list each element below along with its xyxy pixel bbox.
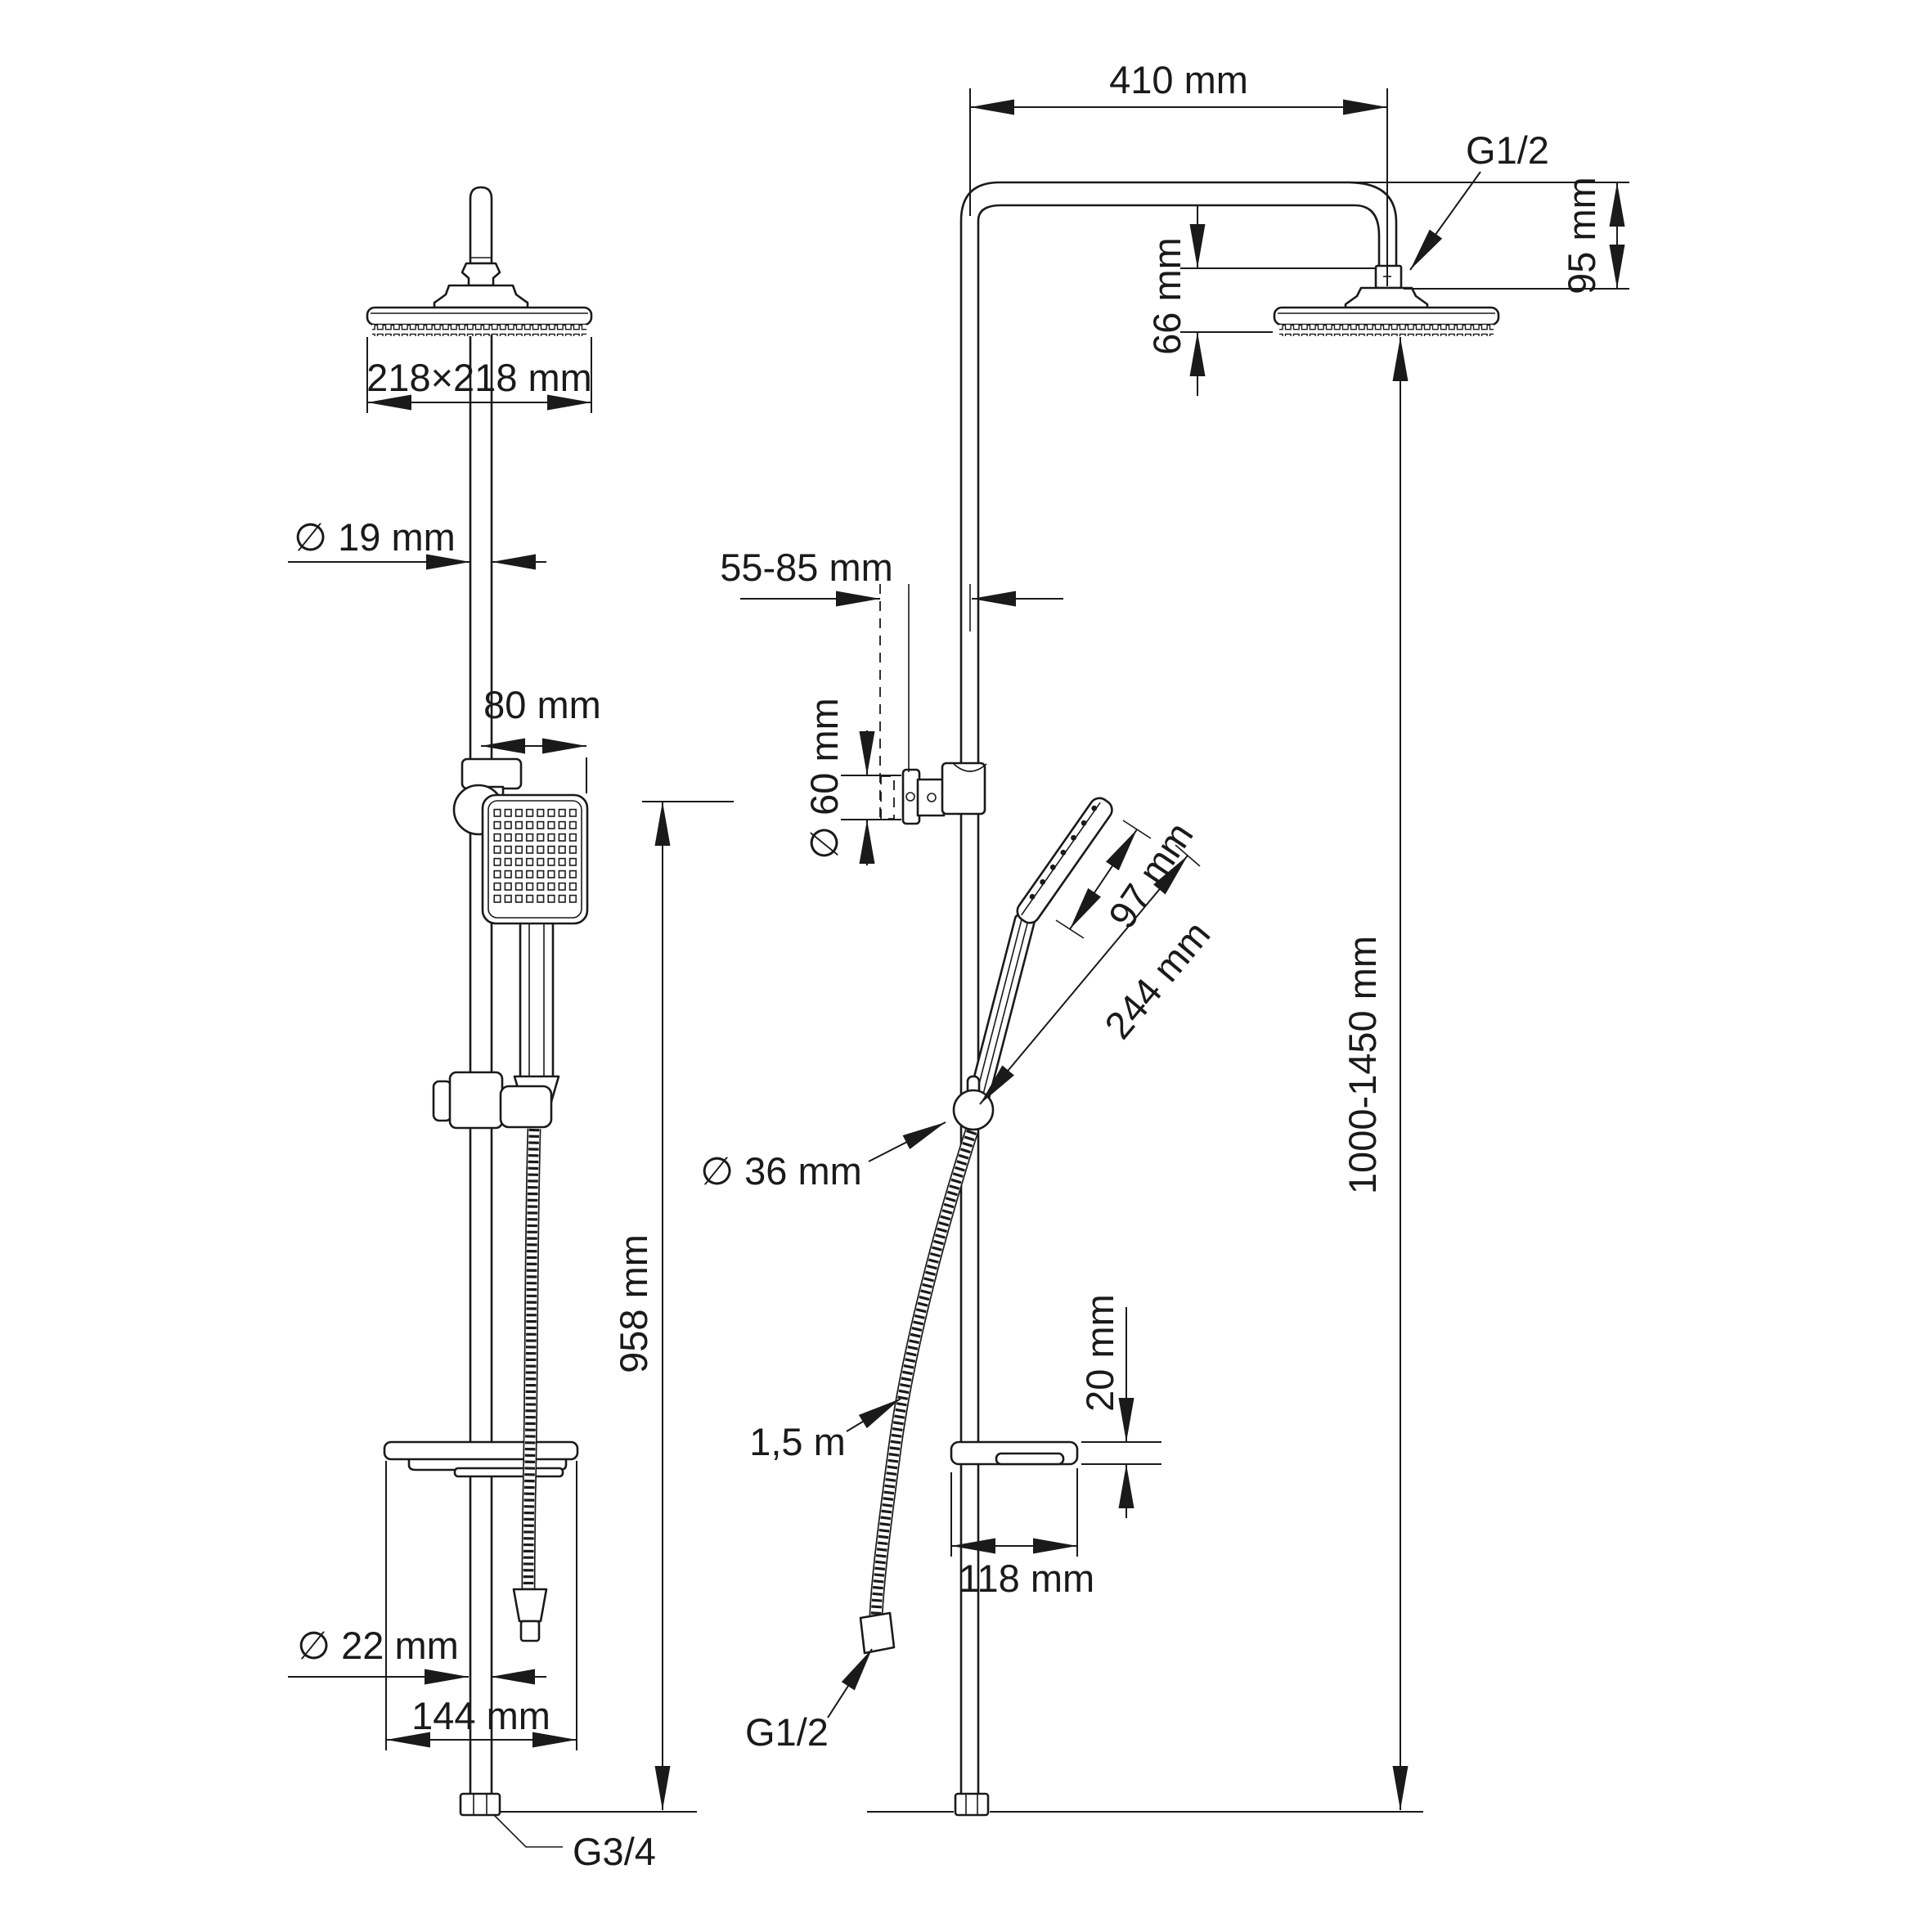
label-shelf-width: 144 mm [411,1694,550,1737]
label-lower-riser-diameter: ∅ 22 mm [297,1624,459,1667]
canvas-background [0,0,1932,1932]
label-holder-diameter: ∅ 36 mm [700,1149,862,1193]
side-overhead-shower-head [1274,308,1498,336]
label-hose-length: 1,5 m [749,1420,846,1463]
label-wall-clearance: 55-85 mm [720,546,893,589]
front-head-nozzles [372,325,586,336]
front-hose-nut [514,1589,546,1621]
label-hose-thread: G1/2 [745,1710,829,1754]
technical-drawing-page: 218×218 mm ∅ 19 mm 80 mm 958 mm ∅ 22 mm [0,0,1932,1932]
label-installation-height: 1000-1450 mm [1341,936,1384,1194]
label-rail-length: 958 mm [612,1234,655,1373]
label-bracket-flange-diameter: ∅ 60 mm [802,698,846,860]
label-shelf-depth: 118 mm [959,1557,1094,1600]
front-inlet-connector [461,1794,500,1815]
side-head-nozzles [1279,325,1494,336]
label-riser-diameter: ∅ 19 mm [294,515,456,559]
shower-system-drawing: 218×218 mm ∅ 19 mm 80 mm 958 mm ∅ 22 mm [0,0,1932,1932]
side-hose-nut [860,1613,894,1653]
label-arm-drop: 95 mm [1560,177,1603,294]
side-inlet-connector [955,1794,988,1815]
front-overhead-shower-head [367,308,591,336]
label-head-depth: 66 mm [1145,237,1188,355]
label-inlet-thread: G3/4 [573,1830,656,1873]
front-handshower-spray-grid [492,807,579,905]
label-handshower-offset: 80 mm [483,683,601,726]
label-shelf-thickness: 20 mm [1078,1294,1121,1412]
label-head-size: 218×218 mm [366,356,592,399]
label-arm-reach: 410 mm [1109,58,1248,101]
side-shelf [951,1442,1077,1464]
label-overhead-thread: G1/2 [1466,128,1549,172]
